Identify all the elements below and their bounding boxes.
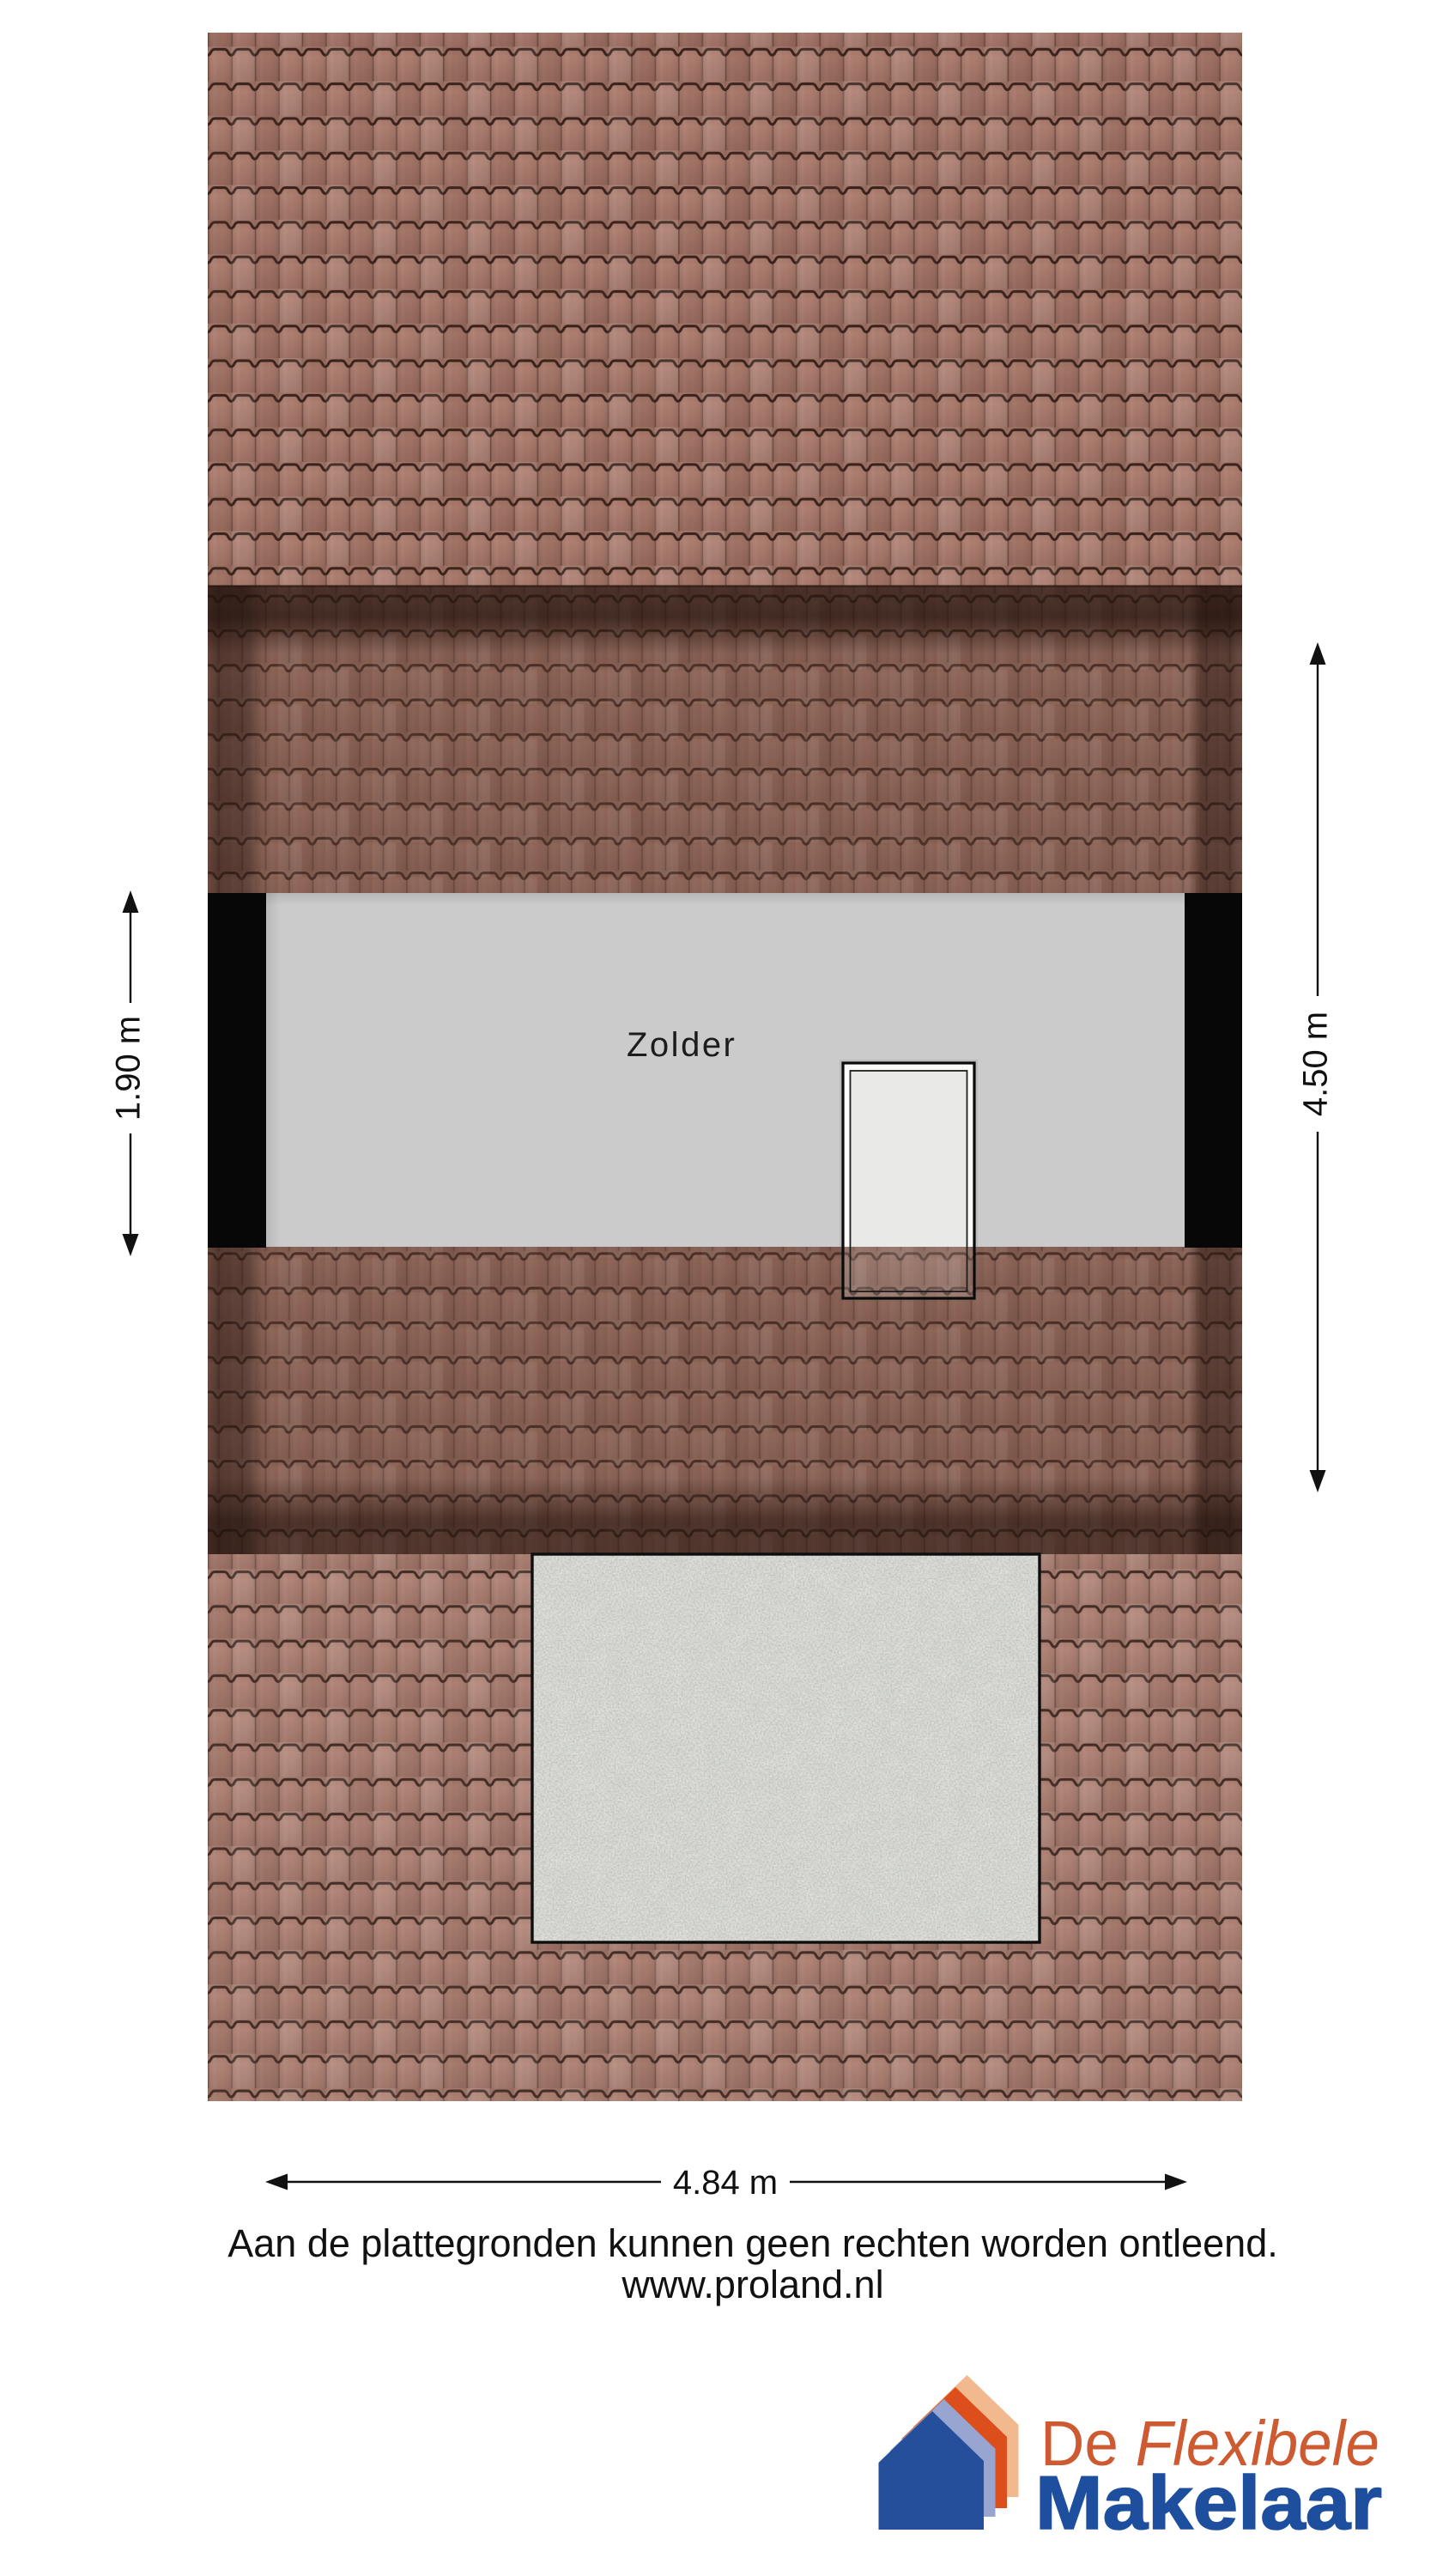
svg-text:Makelaar: Makelaar (1035, 2460, 1382, 2545)
svg-text:1.90 m: 1.90 m (110, 1016, 148, 1121)
svg-text:www.proland.nl: www.proland.nl (621, 2263, 883, 2306)
svg-text:Zolder: Zolder (627, 1026, 737, 1064)
svg-text:Aan de plattegronden kunnen ge: Aan de plattegronden kunnen geen rechten… (227, 2221, 1277, 2265)
svg-text:4.50 m: 4.50 m (1297, 1012, 1335, 1116)
svg-text:4.84 m: 4.84 m (673, 2164, 778, 2202)
